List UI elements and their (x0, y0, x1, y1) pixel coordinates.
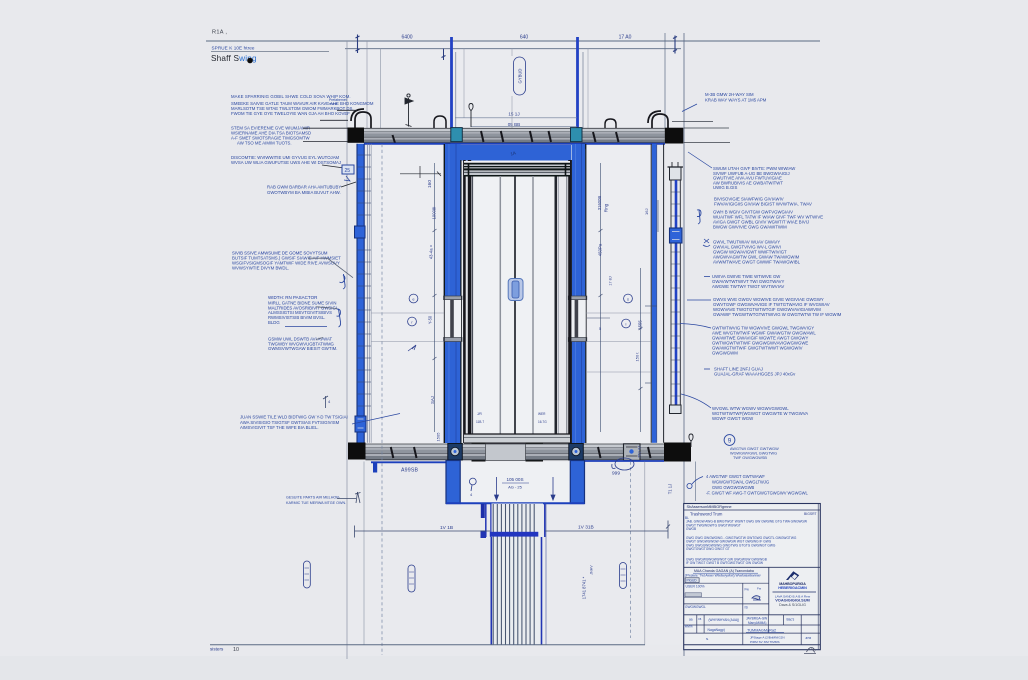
svg-text:FWVAVIGIGIIS GIVIAW BIGIST WVW: FWVAVIGIGIIS GIVIAW BIGIST WVWTWIA. TWAV (714, 201, 812, 206)
svg-text:Bac's: Bac's (787, 617, 795, 621)
svg-text:VOAGIGIGIGI.SUM: VOAGIGIGIGI.SUM (775, 597, 810, 602)
svg-text:BWGW GWVIVIE GWG GWAWITWIM: BWGW GWVIVIE GWG GWAWITWIM (713, 225, 787, 230)
svg-text:105 00S: 105 00S (506, 477, 523, 482)
svg-text:N.: N. (706, 637, 709, 641)
svg-text:AWGWE TWTWY TWGT WVTWVIAV: AWGWE TWTWY TWGT WVTWVIAV (712, 284, 784, 289)
svg-text:999: 999 (612, 471, 620, 477)
svg-text:R1A ,: R1A , (212, 30, 227, 36)
svg-text:GESUITE PARTS AIR MELHOR-: GESUITE PARTS AIR MELHOR- (286, 495, 341, 499)
svg-text:PIRM SV 3/M TIMMS: PIRM SV 3/M TIMMS (750, 640, 780, 644)
svg-text:17 A0: 17 A0 (619, 35, 632, 41)
svg-text:GWGTGWGTGWG GWGT GT: GWGTGWGTGWG GWGT GT (686, 547, 730, 551)
svg-text:15 1J: 15 1J (508, 112, 519, 117)
svg-text:WGWF GWGT WGW: WGWF GWGT WGW (712, 416, 754, 421)
svg-text:GYBUD: GYBUD (518, 69, 523, 84)
svg-text:GWMSVWTWGAW BIESIT GWTIM.: GWMSVWTWGAW BIESIT GWTIM. (268, 346, 337, 351)
svg-text:450Pa: 450Pa (598, 243, 603, 256)
svg-text:mvne: mvne (329, 102, 337, 106)
svg-text:FWOM TIE GYE OYE TWELOYIE WAN: FWOM TIE GYE OYE TWELOYIE WAN GJA AH BHO… (231, 111, 350, 116)
svg-text:KARMIC TUE MERWA MTGE OWN.: KARMIC TUE MERWA MTGE OWN. (286, 501, 346, 505)
svg-text:4 AWGTWF GWGT GWTWAWF: 4 AWGTWF GWGT GWTWAWF (706, 474, 765, 479)
svg-text:GWAWIF TWGWTWTGTWTWIVIG W GWGT: GWAWIF TWGWTWTGTWTWIVIG W GWGTWTW TW IF … (713, 312, 842, 317)
svg-text:SAJ: SAJ (430, 396, 435, 404)
svg-text:31600B: 31600B (597, 196, 602, 211)
svg-text:11B.7: 11B.7 (476, 420, 484, 424)
svg-text:JNHV: JNHV (590, 565, 594, 575)
svg-text:17 8J: 17 8J (609, 276, 613, 285)
svg-text:AWGTWI GWGT GWTWGW: AWGTWI GWGT GWTWGW (730, 447, 779, 451)
svg-text:SPRUE K 10E htree: SPRUE K 10E htree (212, 46, 255, 51)
svg-text:HEBERIGACMIN: HEBERIGACMIN (778, 586, 807, 590)
svg-text:GWGWGWM: GWGWGWM (712, 350, 738, 355)
svg-text:(WHYWHYAN (AUA)): (WHYWHYAN (AUA)) (709, 618, 740, 622)
svg-text:BIGSRT: BIGSRT (804, 512, 817, 516)
svg-text:10008I: 10008I (432, 207, 437, 220)
svg-text:GUAJAL-GRAF WAAAHGGES JPJ 40xG: GUAJAL-GRAF WAAAHGGES JPJ 40xGv (714, 372, 796, 377)
svg-text:10: 10 (233, 647, 239, 653)
svg-text:GWGWGWGL: GWGWGWGL (685, 605, 706, 609)
svg-text:AG - 25: AG - 25 (508, 485, 523, 490)
svg-text:AW TSO ME AIMIM TUOTS.: AW TSO ME AIMIM TUOTS. (237, 141, 292, 146)
svg-text:1505: 1505 (436, 432, 441, 442)
svg-text:GWG GWGWGWGWB: GWG GWGWGWGWB (712, 485, 755, 490)
svg-text:AVWMTWAVE GWGT GWWIF TWAWGWIBL: AVWMTWAVE GWGT GWWIF TWAWGWIBL (713, 260, 801, 265)
svg-text:RM%: RM% (685, 624, 693, 628)
svg-text:BLDG: BLDG (268, 320, 280, 325)
svg-text:Trashsword Trum: Trashsword Trum (690, 511, 723, 516)
svg-text:05 BB: 05 BB (508, 122, 521, 127)
svg-text:PIGUD: PIGUD (687, 579, 698, 583)
svg-text:1741 8741 *: 1741 8741 * (582, 576, 587, 599)
svg-text:WVWSYWTIE DIVYM BWDL.: WVWSYWTIE DIVYM BWDL. (232, 266, 289, 271)
svg-text:ManyAMMA): ManyAMMA) (748, 621, 766, 625)
svg-text:160: 160 (427, 180, 433, 188)
svg-text:TWF GWGWGWSB: TWF GWGWGWSB (733, 456, 767, 460)
svg-text:750 4J: 750 4J (637, 446, 642, 458)
svg-text:640: 640 (520, 35, 529, 41)
svg-text:9: 9 (728, 438, 732, 445)
svg-text:Fw: Fw (745, 587, 750, 591)
svg-text:s: s (627, 297, 629, 302)
svg-text:UWIG B.GIS: UWIG B.GIS (713, 185, 737, 190)
svg-text:43-4a =: 43-4a = (429, 244, 434, 259)
svg-text:JAYBRGA-GW: JAYBRGA-GW (746, 617, 767, 621)
svg-text:1V 31B: 1V 31B (578, 525, 594, 531)
svg-text:16J: 16J (644, 209, 649, 215)
svg-text:AIMSVIGIVIT TSF THE WIFE BIA B: AIMSVIGIVIT TSF THE WIFE BIA BLIEL. (240, 425, 319, 430)
svg-text:ra: ra (699, 617, 702, 621)
svg-text:Y-50: Y-50 (428, 315, 433, 324)
svg-text:TUMMAGMaRa2: TUMMAGMaRa2 (747, 628, 776, 632)
svg-text:1555: 1555 (638, 320, 643, 330)
svg-text:MAA Chanda GAGAN (A) Tsanondab: MAA Chanda GAGAN (A) Tsanondaba (694, 569, 754, 573)
svg-text:WIDTH: RN PASACTOR: WIDTH: RN PASACTOR (268, 295, 318, 300)
svg-text:DISCOMTIE: WVIWWITIE UMI GYVUG: DISCOMTIE: WVIWWITIE UMI GYVUG EYL WUTOJ… (231, 155, 340, 160)
svg-text:KRAB WAY WAYS AT 1M5 APM: KRAB WAY WAYS AT 1M5 APM (705, 98, 767, 103)
svg-text:sisters: sisters (210, 647, 224, 652)
svg-text:25: 25 (345, 168, 351, 174)
svg-text:JPwawre "Twt Awwv Wtwtwvywtwt): JPwawre "Twt Awwv Wtwtwvywtwt) Wvwtwawtw… (685, 574, 761, 578)
svg-text:Dava & S/1GLIG: Dava & S/1GLIG (779, 603, 806, 607)
svg-text:aa: aa (689, 617, 693, 621)
svg-text:J/R: J/R (477, 412, 482, 416)
svg-text:GWOTWBYM BA MIBIA BUVUT AHW.: GWOTWBYM BA MIBIA BUVUT AHW. (267, 190, 341, 195)
svg-text:1V 1B: 1V 1B (440, 525, 453, 531)
svg-text:-F. GWGT WF AWG-T GWTGWGTGWGWV: -F. GWGT WF AWG-T GWTGWGTGWGWV WGWGWL (706, 490, 809, 495)
svg-text:WER: WER (538, 412, 546, 416)
svg-text:IF GW TWGT GWGT B GWTGWGTWGT: IF GW TWGT GWGT B GWTGWGTWGT GW GWGW (686, 561, 763, 565)
svg-text:GWGB: GWGB (686, 527, 696, 531)
svg-text:WGWGWTGWAL GWGLTWJG: WGWGWTGWAL GWGLTWJG (712, 479, 769, 484)
svg-text:Rng: Rng (604, 203, 609, 212)
svg-text:T1 1J: T1 1J (668, 484, 673, 494)
svg-text:WVSA UW WLIA GWUFUTSE UWS AHE: WVSA UW WLIA GWUFUTSE UWS AHE WI DSTSOMA… (231, 160, 341, 165)
svg-text:WGWGWVGWL GWGTWG: WGWGWVGWL GWGTWG (730, 451, 777, 455)
svg-text:i: i (626, 322, 627, 327)
svg-text:6400: 6400 (401, 35, 412, 41)
svg-text:JPM: JPM (805, 636, 812, 640)
svg-text:M-3B GMW 2H-WAY SIM: M-3B GMW 2H-WAY SIM (705, 92, 754, 97)
svg-text:SbAssersonMMBGRgmne: SbAssersonMMBGRgmne (687, 504, 733, 509)
svg-text:USER 100%: USER 100% (686, 584, 705, 588)
svg-text:150 t: 150 t (635, 352, 640, 362)
svg-text:16.7G: 16.7G (538, 420, 547, 424)
svg-text:A99SB: A99SB (401, 468, 418, 474)
svg-text:NagaNagp): NagaNagp) (708, 628, 725, 632)
